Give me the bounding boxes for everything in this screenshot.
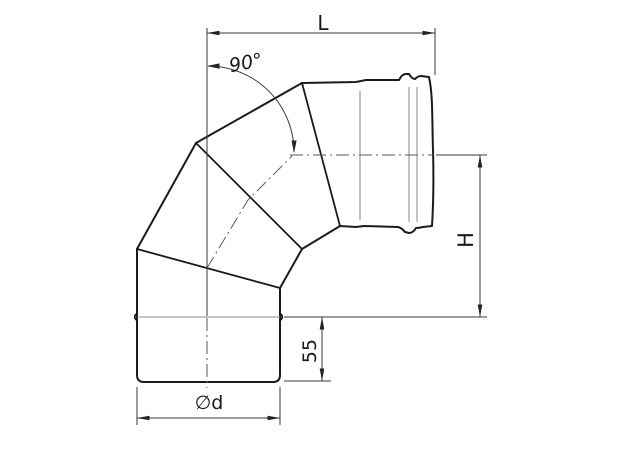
arrowhead-55-top xyxy=(320,317,325,330)
arrowhead-L-left xyxy=(207,31,220,36)
arrowhead-arc-end xyxy=(292,141,297,154)
elbow-technical-drawing: L 90° H 55 ∅d xyxy=(0,0,624,460)
arrowhead-H-bottom xyxy=(478,305,483,318)
arrowhead-d-right xyxy=(268,416,281,421)
dim-label-diameter: ∅d xyxy=(195,392,224,414)
angle-label: 90° xyxy=(227,49,264,77)
dimension-lines xyxy=(137,28,487,425)
drawing-svg: L 90° H 55 ∅d xyxy=(0,0,624,460)
arrowhead-55-bottom xyxy=(320,369,325,382)
dim-label-stub: 55 xyxy=(299,339,321,363)
dim-label-height: H xyxy=(454,232,478,248)
arrowhead-arc-start xyxy=(207,63,220,68)
elbow-axis-centerline xyxy=(207,156,292,268)
arrowhead-d-left xyxy=(137,416,150,421)
arrowhead-L-right xyxy=(423,31,436,36)
segment-joint-lower xyxy=(137,249,280,288)
pipe-outline xyxy=(135,74,434,382)
segment-joint-middle xyxy=(196,143,302,249)
elbow-silhouette xyxy=(137,74,433,382)
dim-label-length: L xyxy=(317,11,329,35)
angle-arc xyxy=(208,66,294,152)
arrowhead-H-top xyxy=(478,155,483,168)
